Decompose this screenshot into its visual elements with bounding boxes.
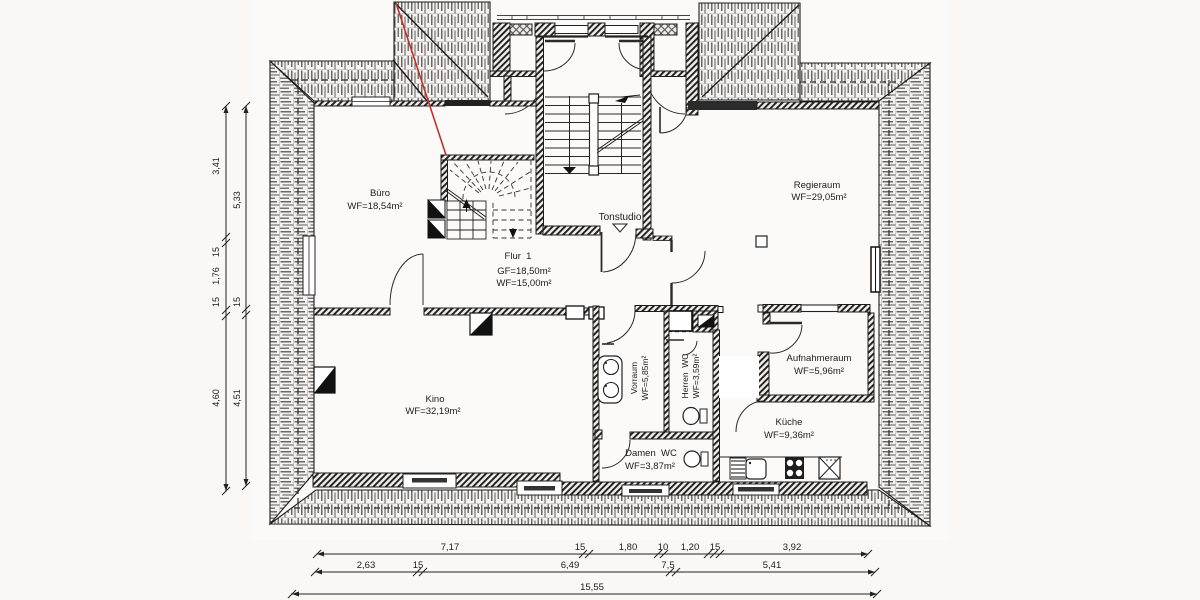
svg-text:WF=5,96m²: WF=5,96m²: [794, 366, 844, 377]
svg-text:Aufnahmeraum: Aufnahmeraum: [787, 353, 852, 364]
svg-text:Herren WC: Herren WC: [680, 354, 690, 399]
svg-text:4,60: 4,60: [211, 389, 221, 407]
svg-text:15: 15: [575, 542, 586, 553]
svg-text:3,92: 3,92: [783, 542, 802, 553]
svg-text:Büro: Büro: [370, 188, 390, 199]
svg-text:WF=32,19m²: WF=32,19m²: [405, 406, 460, 417]
svg-text:WF=18,54m²: WF=18,54m²: [347, 201, 402, 212]
svg-text:15: 15: [211, 297, 221, 307]
svg-text:7,5: 7,5: [661, 560, 674, 571]
svg-text:5,33: 5,33: [232, 191, 242, 209]
svg-text:WF=3,87m²: WF=3,87m²: [625, 461, 675, 472]
svg-text:3,41: 3,41: [211, 157, 221, 175]
svg-text:WF=3,59m²: WF=3,59m²: [691, 354, 701, 399]
svg-text:10: 10: [658, 542, 669, 553]
svg-text:Tonstudio: Tonstudio: [599, 212, 642, 223]
svg-text:15: 15: [211, 247, 221, 257]
svg-text:1,76: 1,76: [211, 267, 221, 285]
svg-text:15,55: 15,55: [580, 582, 604, 593]
svg-text:WF=5,85m²: WF=5,85m²: [640, 356, 650, 401]
svg-text:6,49: 6,49: [561, 560, 580, 571]
svg-text:WF=15,00m²: WF=15,00m²: [496, 278, 551, 289]
svg-text:4,51: 4,51: [232, 389, 242, 407]
svg-text:Kino: Kino: [425, 394, 444, 405]
svg-text:Küche: Küche: [776, 417, 803, 428]
svg-text:7,17: 7,17: [441, 542, 460, 553]
svg-text:WF=9,36m²: WF=9,36m²: [764, 430, 814, 441]
svg-text:Damen WC: Damen WC: [625, 448, 677, 459]
svg-text:1,20: 1,20: [681, 542, 700, 553]
svg-text:1,80: 1,80: [619, 542, 638, 553]
svg-text:WF=29,05m²: WF=29,05m²: [791, 192, 846, 203]
svg-text:15: 15: [413, 560, 424, 571]
svg-text:15: 15: [232, 297, 242, 307]
svg-text:GF=18,50m²: GF=18,50m²: [497, 266, 551, 277]
svg-text:Regieraum: Regieraum: [794, 180, 841, 191]
svg-text:Flur 1: Flur 1: [505, 251, 532, 262]
svg-text:5,41: 5,41: [763, 560, 782, 571]
svg-text:15: 15: [710, 542, 721, 553]
svg-text:Vorraum: Vorraum: [629, 362, 639, 394]
svg-text:2,63: 2,63: [357, 560, 376, 571]
